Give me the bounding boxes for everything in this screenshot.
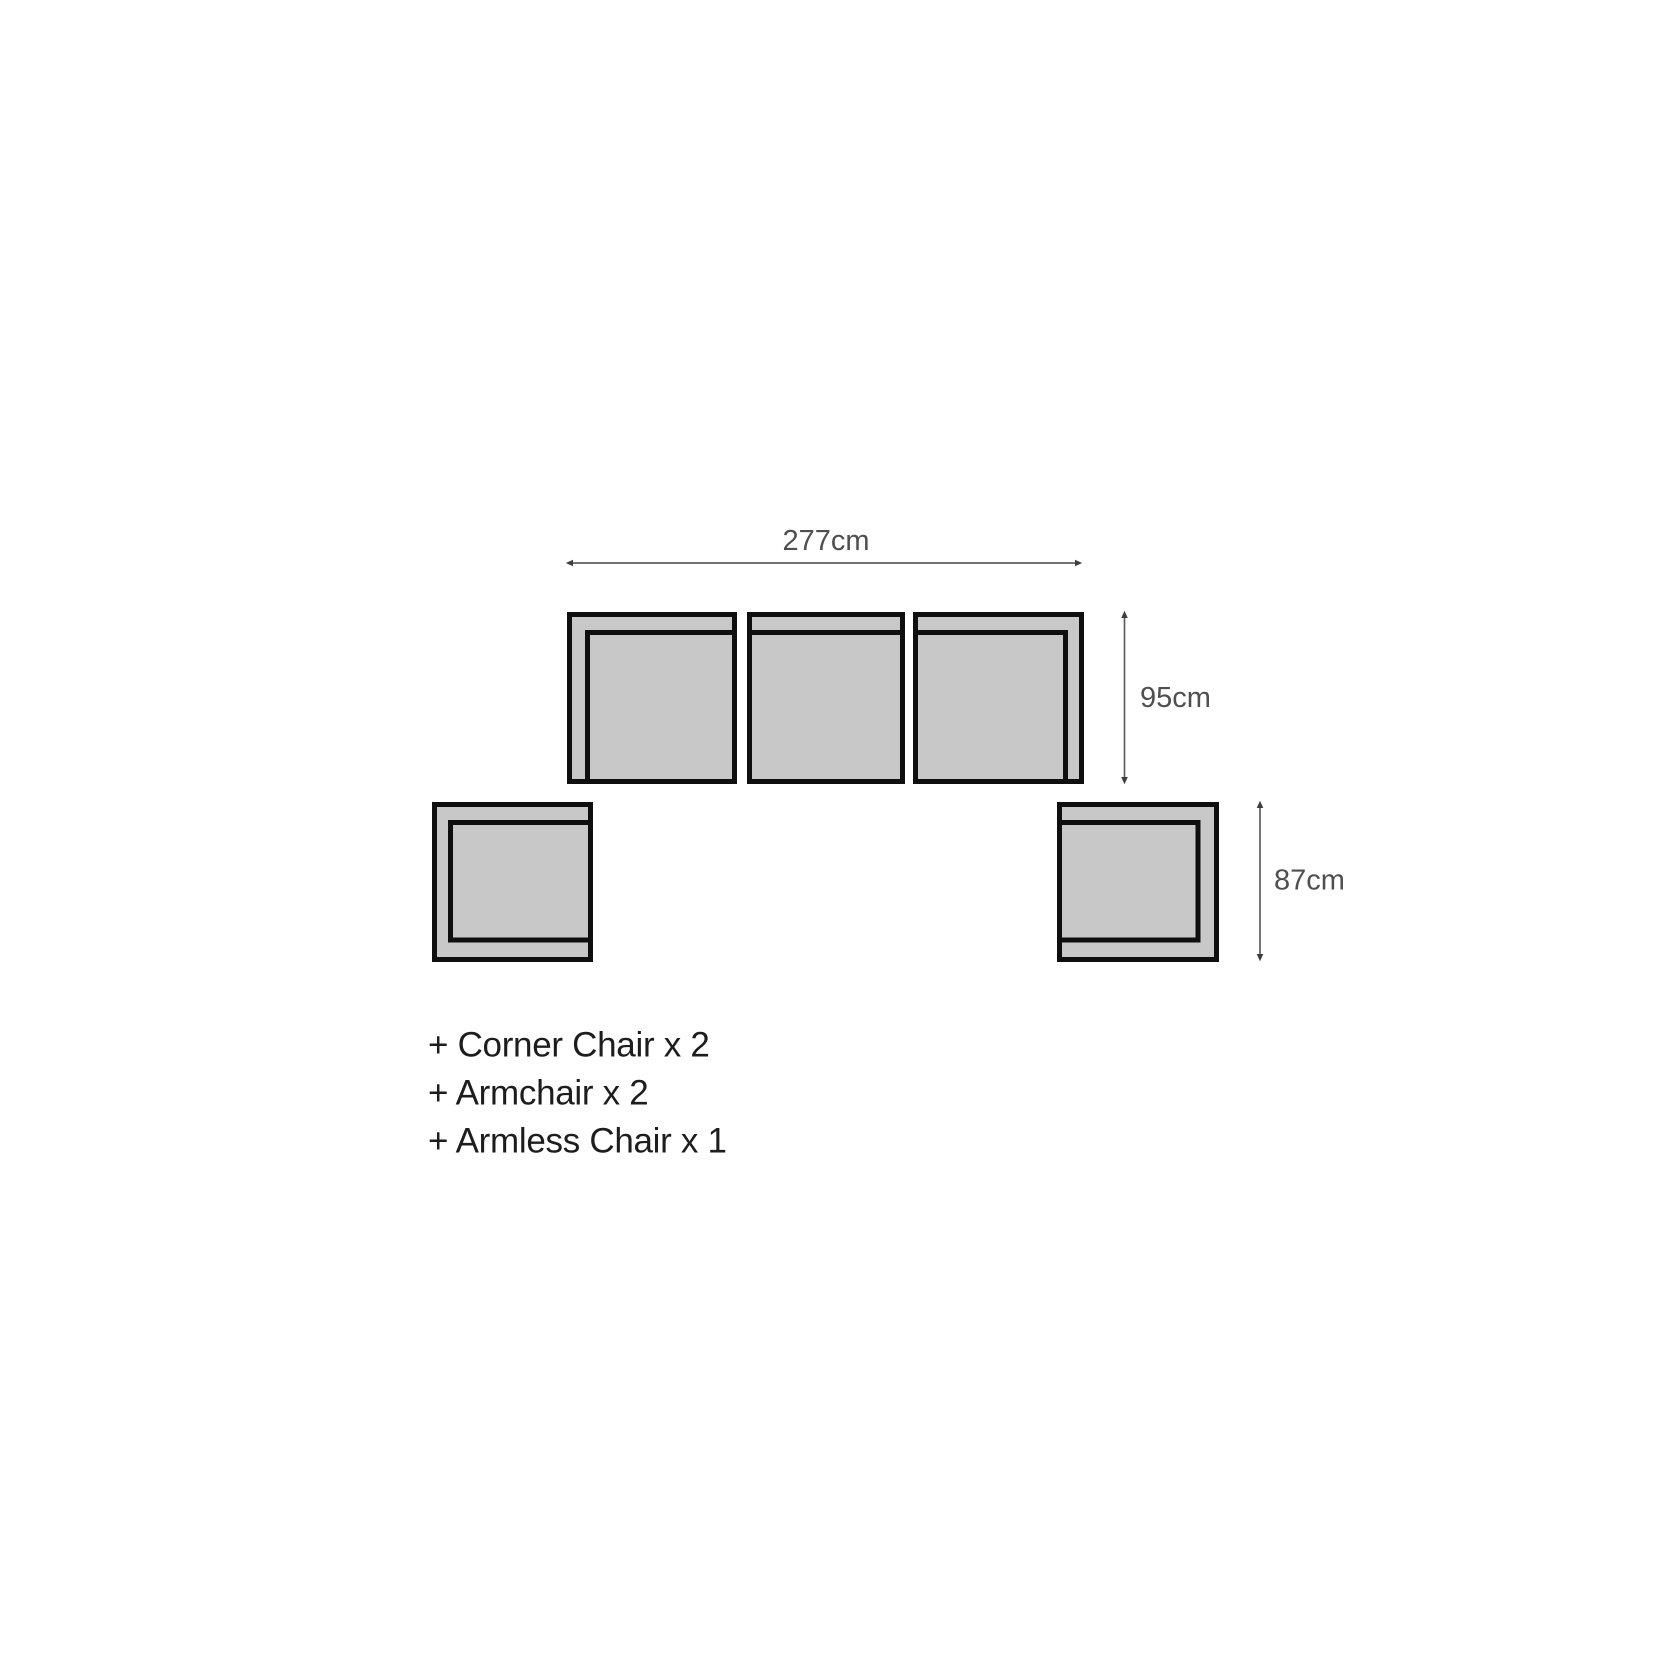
svg-text:+ Armless Chair x 1: + Armless Chair x 1 xyxy=(428,1122,727,1161)
svg-text:87cm: 87cm xyxy=(1274,865,1345,897)
svg-text:+ Corner Chair x 2: + Corner Chair x 2 xyxy=(428,1026,710,1065)
svg-text:95cm: 95cm xyxy=(1140,682,1211,714)
svg-text:277cm: 277cm xyxy=(782,525,869,557)
svg-text:+ Armchair x 2: + Armchair x 2 xyxy=(428,1074,648,1113)
